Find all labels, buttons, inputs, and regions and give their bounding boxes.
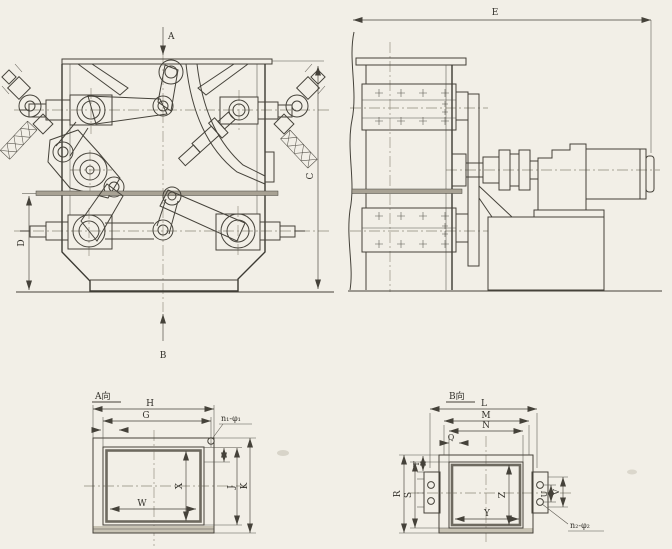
view-label-a: A xyxy=(167,32,175,42)
dim-label-v: V xyxy=(552,489,561,496)
dim-label-h: H xyxy=(146,399,154,409)
engineering-drawing: A B xyxy=(0,0,672,549)
dim-label-m: M xyxy=(481,411,490,421)
view-b-title: B向 xyxy=(449,390,465,402)
dim-label-l: L xyxy=(481,399,487,409)
view-a-body xyxy=(93,438,214,533)
dim-d: D xyxy=(17,196,29,290)
view-b-body xyxy=(417,455,548,533)
view-a-title: A向 xyxy=(94,390,111,402)
side-centerlines xyxy=(350,42,660,292)
flange-a-hole-callout: n₁-φ₁ xyxy=(221,414,241,423)
dim-label-k: K xyxy=(240,482,250,489)
dim-label-n: N xyxy=(482,421,490,431)
tension-rod xyxy=(36,191,278,196)
right-spring-assembly xyxy=(274,64,325,168)
front-housing xyxy=(16,59,334,292)
dim-label-y: Y xyxy=(483,509,491,519)
flange-view-b: B向 L M xyxy=(393,390,604,544)
paper-smudge xyxy=(627,470,637,475)
dim-label-w: W xyxy=(137,499,147,509)
dim-label-r: R xyxy=(393,490,403,497)
view-label-b: B xyxy=(160,351,167,361)
front-upper-mechanism xyxy=(20,60,292,198)
dim-label-c: C xyxy=(306,172,316,179)
dim-label-x: X xyxy=(175,482,185,489)
dim-label-d: D xyxy=(17,239,27,246)
dim-label-s: S xyxy=(404,492,414,498)
left-spring-assembly xyxy=(0,64,53,159)
motor-base xyxy=(488,217,604,290)
dim-label-t: T xyxy=(412,461,421,467)
dim-e: E xyxy=(353,8,651,153)
flange-b-left-bracket xyxy=(424,472,440,513)
dim-label-e: E xyxy=(492,8,499,18)
flange-view-a: A向 H G W xyxy=(84,390,256,546)
dim-label-q: Q xyxy=(448,433,455,442)
dim-label-j: J xyxy=(227,485,237,490)
flange-b-hole-callout: n₂-φ₂ xyxy=(570,521,590,530)
paper-smudge xyxy=(277,450,289,456)
drawing-canvas: A B xyxy=(0,0,672,549)
side-body xyxy=(348,32,662,291)
dim-label-u: U xyxy=(540,490,549,497)
dim-label-z: Z xyxy=(498,492,508,498)
view-a-dims: H G W X J K n₁-φ₁ xyxy=(93,399,256,533)
front-view: A B xyxy=(0,27,334,361)
dim-label-g: G xyxy=(142,411,149,421)
side-view: E xyxy=(348,8,662,292)
drive-train xyxy=(452,144,654,290)
motor-body xyxy=(586,149,646,199)
